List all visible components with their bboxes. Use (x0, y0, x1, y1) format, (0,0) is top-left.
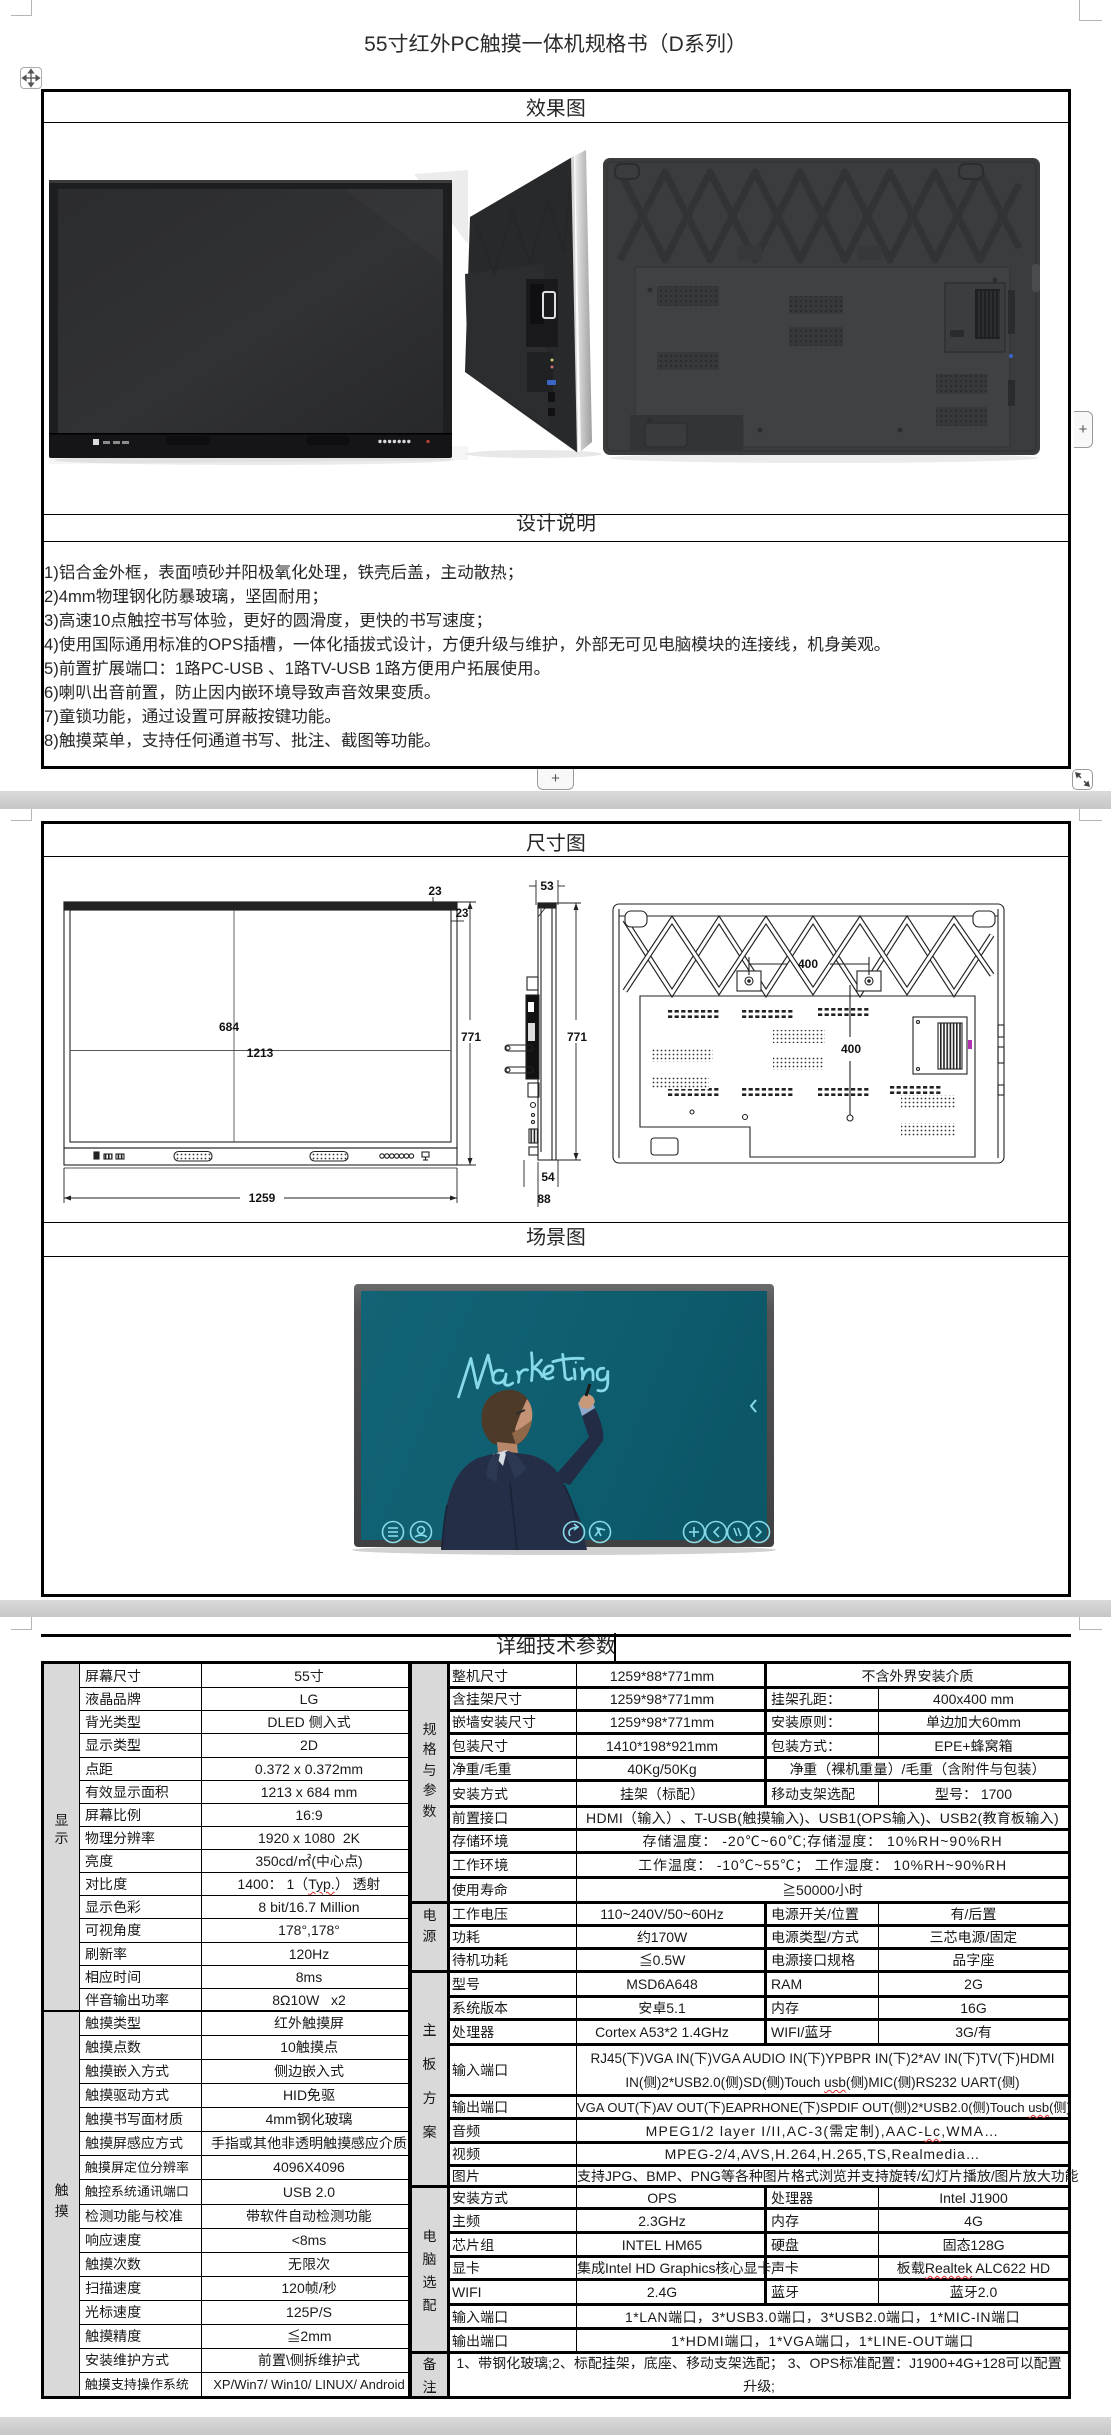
svg-text:23: 23 (456, 908, 469, 920)
svg-text:88: 88 (537, 1192, 551, 1206)
svg-text:771: 771 (567, 1030, 587, 1044)
svg-text:771: 771 (461, 1030, 481, 1044)
svg-text:23: 23 (428, 884, 442, 898)
svg-text:684: 684 (219, 1020, 239, 1034)
svg-text:54: 54 (541, 1170, 555, 1184)
svg-text:400: 400 (841, 1042, 861, 1056)
svg-text:1259: 1259 (249, 1191, 276, 1205)
svg-text:400: 400 (798, 957, 818, 971)
svg-text:1213: 1213 (247, 1046, 274, 1060)
svg-text:53: 53 (540, 879, 554, 893)
